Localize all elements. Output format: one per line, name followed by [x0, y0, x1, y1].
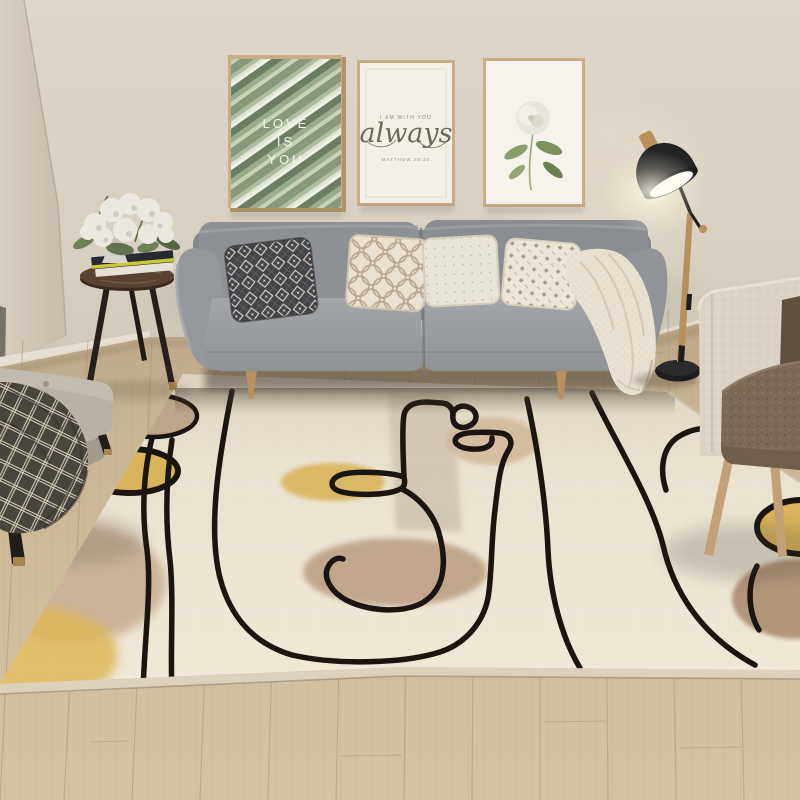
- table-foot-brass: [169, 382, 177, 390]
- sofa: [177, 220, 667, 399]
- gallery-wall: LOVE IS YOU I AM WITH YOU always MATTHEW…: [228, 55, 585, 217]
- frame2-caption-text: MATTHEW 28:20: [382, 157, 431, 162]
- frame1-text-line2: IS: [277, 134, 295, 149]
- frame1-text-line3: YOU: [267, 152, 304, 167]
- living-room-photo: LOVE IS YOU I AM WITH YOU always MATTHEW…: [0, 0, 800, 800]
- pillow-trellis: [346, 234, 429, 311]
- frame-leaf-print: LOVE IS YOU: [228, 55, 346, 217]
- pillow-dotted: [422, 235, 499, 307]
- scene-canvas: LOVE IS YOU I AM WITH YOU always MATTHEW…: [0, 0, 800, 800]
- lamp-glow: [600, 150, 704, 234]
- lamp-pole-joint: [686, 294, 692, 310]
- lamp-pole-bottom-joint: [678, 345, 685, 362]
- ottoman-foot-brass: [13, 557, 25, 566]
- ottoman-foot-brass: [104, 449, 112, 455]
- armchair-back-cushion: [780, 296, 800, 368]
- lamp-counterweight-knob: [699, 225, 707, 233]
- tufting-button: [43, 381, 49, 387]
- pillow-dark-lattice: [224, 237, 319, 323]
- frame-rose-print: [483, 58, 585, 212]
- frame-always-print: I AM WITH YOU always MATTHEW 28:20: [357, 60, 455, 211]
- frame2-script-text: always: [359, 118, 452, 149]
- seat-cushion-seam: [423, 302, 424, 368]
- frame1-text-line1: LOVE: [263, 116, 310, 131]
- rug-big-tan-oval: [303, 538, 487, 606]
